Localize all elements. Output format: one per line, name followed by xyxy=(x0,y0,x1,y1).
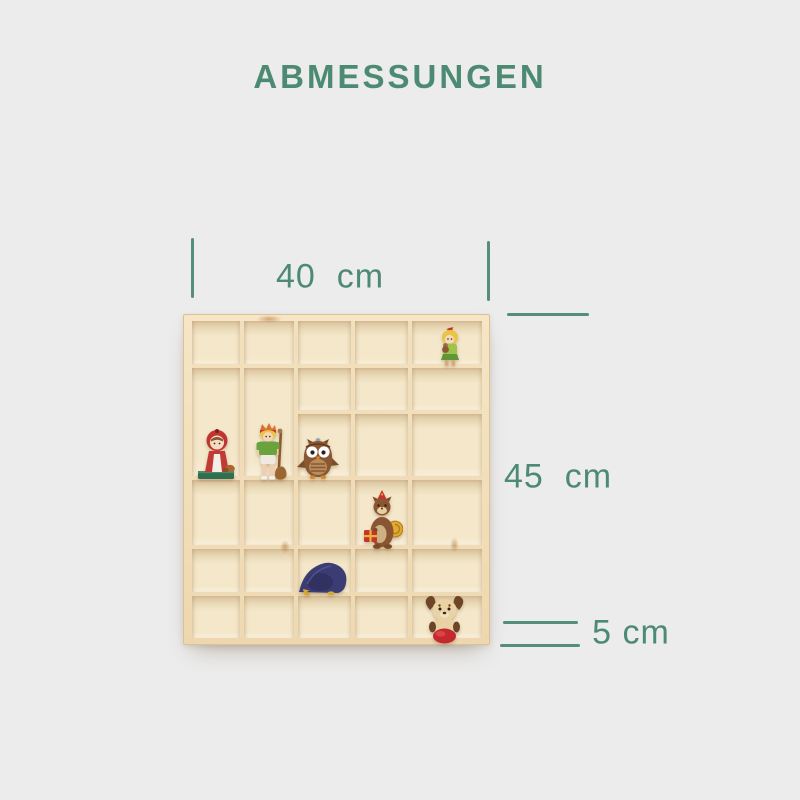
shelf-cell xyxy=(192,549,240,592)
depth-dimension-label: 5 cm xyxy=(592,614,670,653)
shelf-cell xyxy=(412,549,482,592)
shelf-cell xyxy=(412,368,482,410)
shelf-cell xyxy=(192,480,240,545)
depth-dimension-tick-top xyxy=(503,621,578,624)
shelf-cell xyxy=(355,368,408,410)
shelf-cell xyxy=(355,549,408,592)
depth-dimension-tick-bottom xyxy=(500,644,580,647)
shelf-cell xyxy=(412,414,482,476)
shelf-cell xyxy=(355,321,408,364)
width-dimension-label: 40 cm xyxy=(276,258,384,297)
shelf-cell xyxy=(244,321,294,364)
shelf-cell xyxy=(412,480,482,545)
shelf-cell xyxy=(244,549,294,592)
boy-with-stick-figurine xyxy=(251,422,291,480)
shelf-cell xyxy=(355,414,408,476)
shelf-cell xyxy=(192,596,240,638)
shelf-cell xyxy=(298,480,351,545)
page-title: ABMESSUNGEN xyxy=(0,58,800,96)
height-dimension-tick-top xyxy=(507,313,589,316)
dimension-diagram: ABMESSUNGEN 40 cm 45 cm 5 cm xyxy=(0,0,800,800)
shelf-cell xyxy=(298,321,351,364)
shelf-cell xyxy=(244,480,294,545)
dog-with-ball-figurine xyxy=(421,595,468,644)
shelf-cell xyxy=(244,596,294,638)
shelf-cell xyxy=(298,596,351,638)
gnome-girl-figurine xyxy=(436,326,464,367)
width-dimension-tick-left xyxy=(191,238,194,298)
red-riding-hood-figurine xyxy=(197,427,239,480)
sleeping-blue-creature-figurine xyxy=(295,558,352,596)
display-shelf xyxy=(183,314,490,645)
shelf-cell xyxy=(355,596,408,638)
owl-figurine xyxy=(297,437,339,480)
width-dimension-tick-right xyxy=(487,241,490,301)
shelf-cell xyxy=(192,321,240,364)
height-dimension-label: 45 cm xyxy=(504,458,612,497)
squirrel-with-gift-figurine xyxy=(363,490,403,549)
shelf-cell xyxy=(298,368,351,410)
